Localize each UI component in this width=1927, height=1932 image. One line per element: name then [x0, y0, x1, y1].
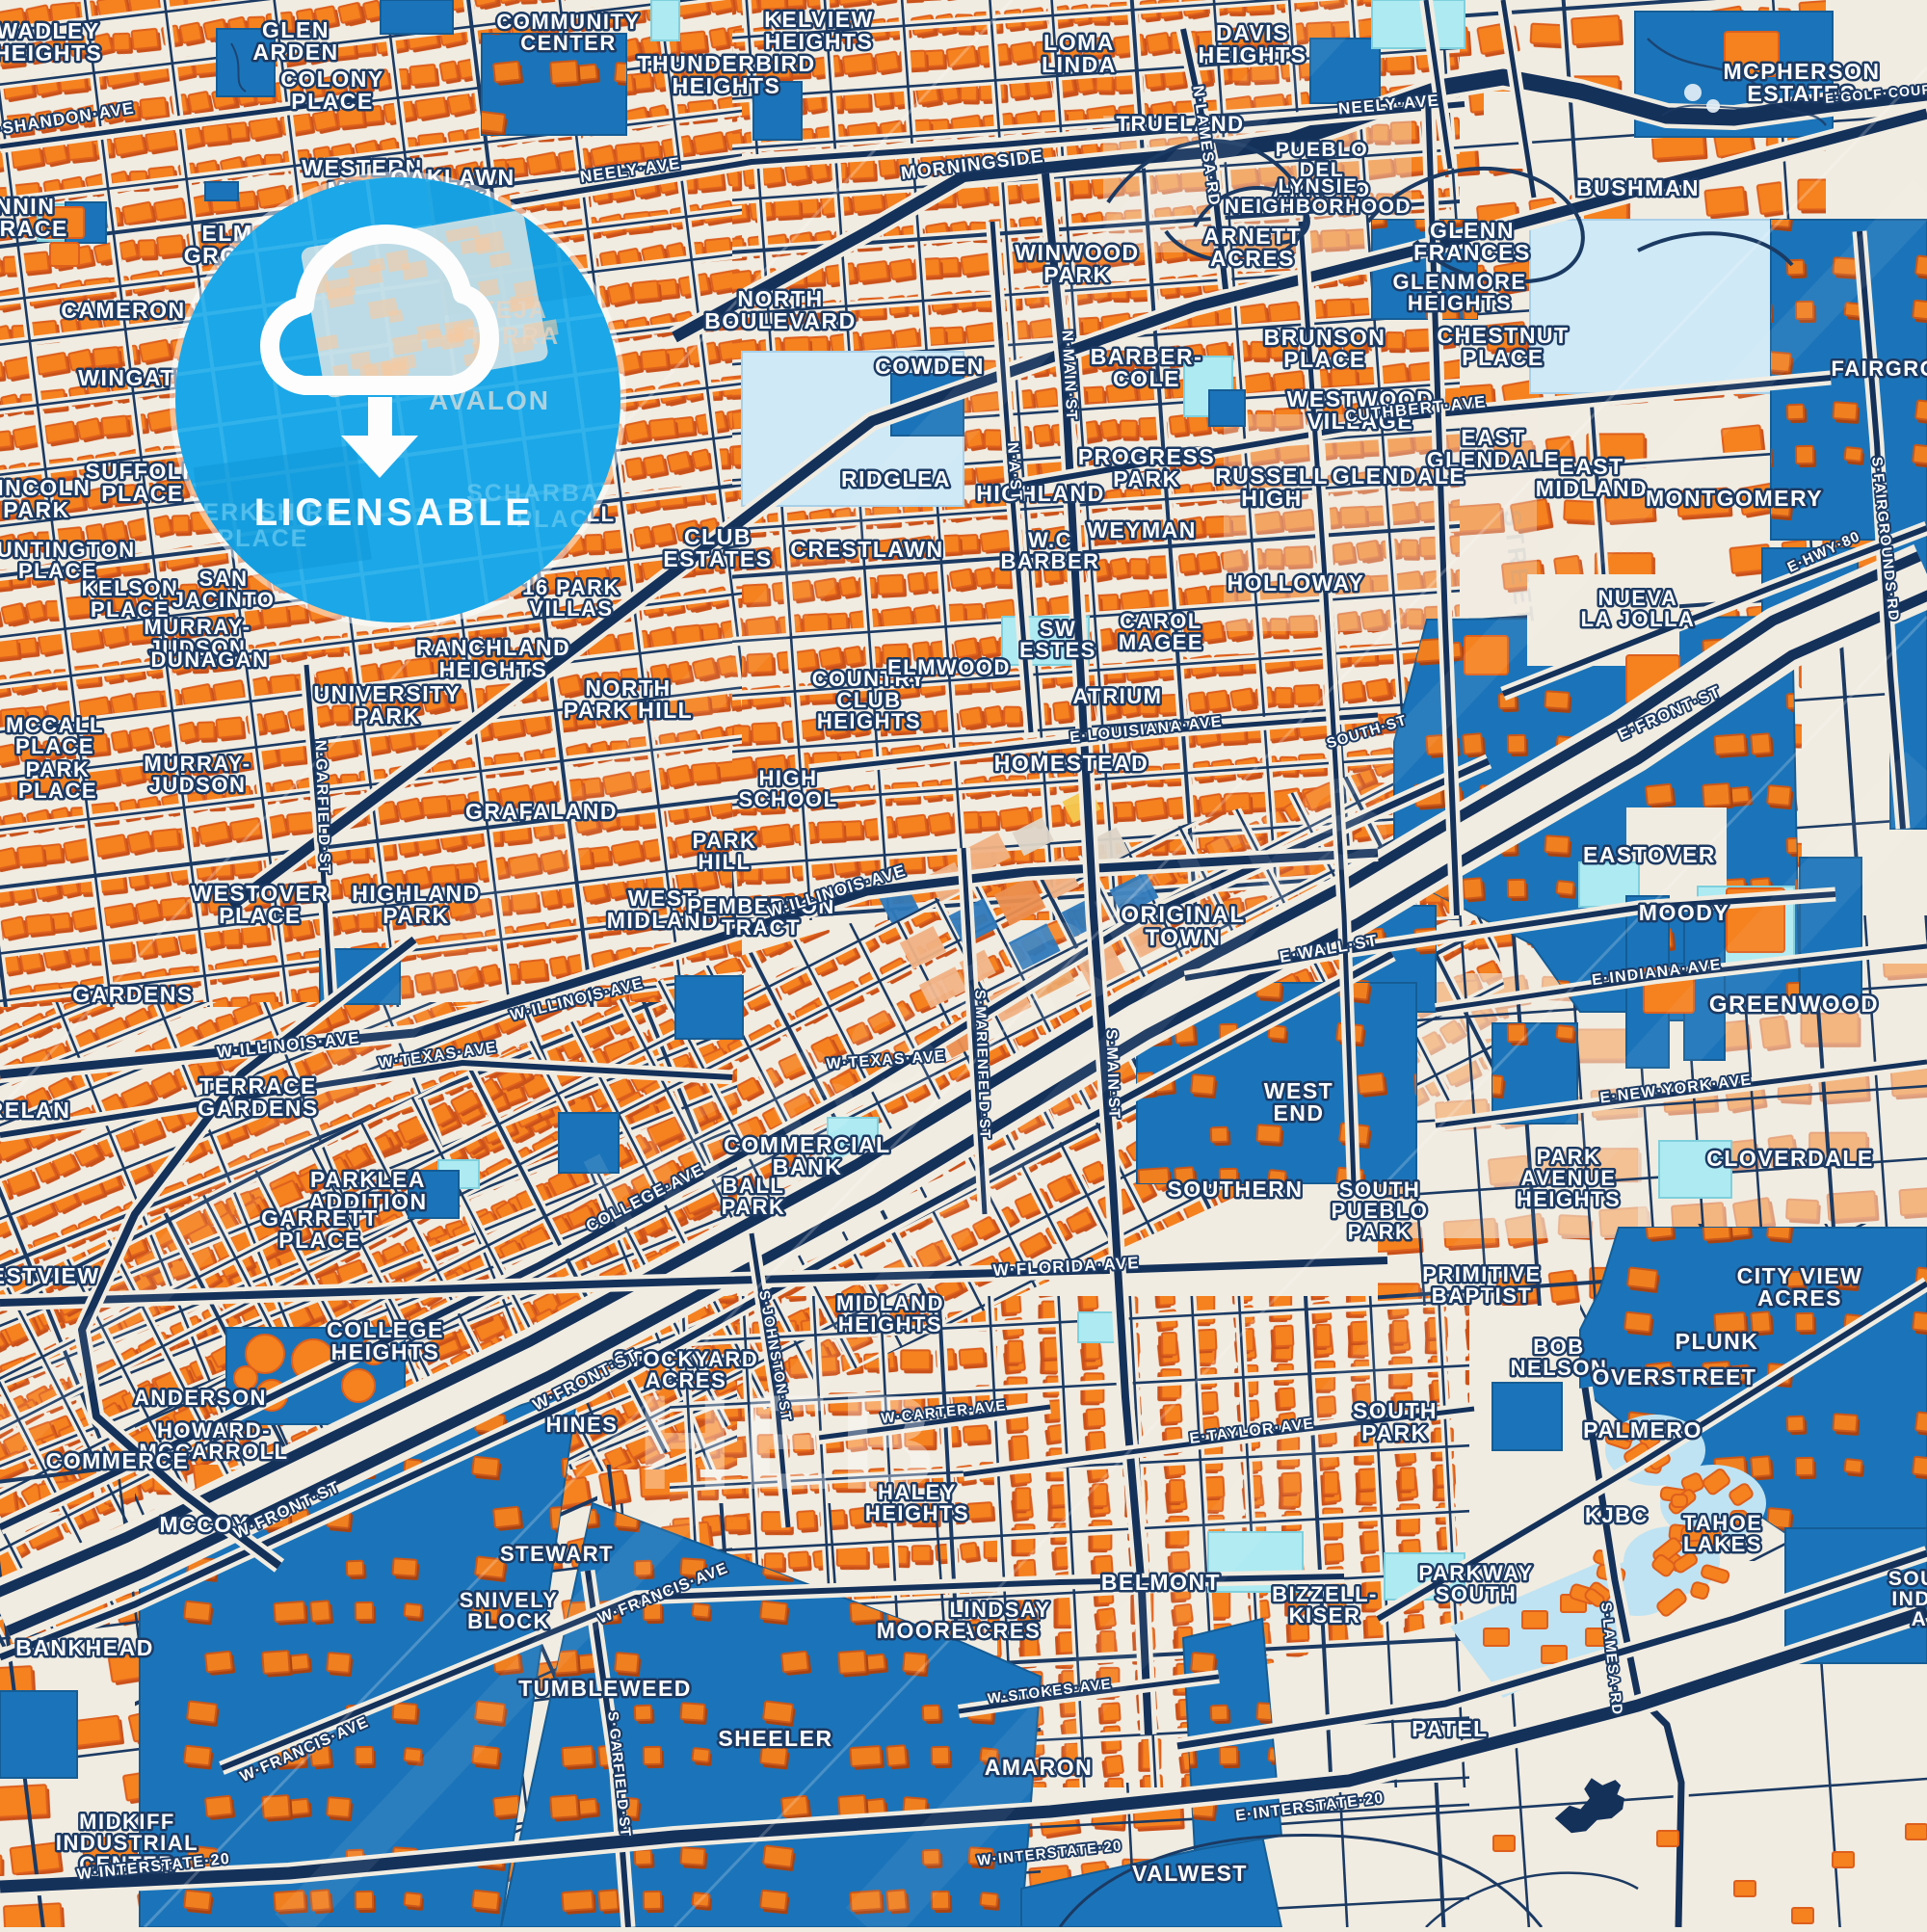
svg-text:TERRACEGARDENS: TERRACEGARDENS	[198, 1073, 319, 1121]
svg-text:BELMONT: BELMONT	[1101, 1570, 1221, 1595]
svg-text:COLLEGEHEIGHTS: COLLEGEHEIGHTS	[327, 1317, 444, 1364]
svg-text:LICENSABLE: LICENSABLE	[254, 491, 535, 534]
svg-text:16 PARKVILLAS: 16 PARKVILLAS	[522, 575, 620, 621]
svg-text:PARKPLACE: PARKPLACE	[18, 757, 97, 803]
svg-text:MIDLANDHEIGHTS: MIDLANDHEIGHTS	[836, 1291, 944, 1337]
svg-text:GARRETTPLACE: GARRETTPLACE	[261, 1205, 379, 1253]
svg-text:PARKWAYSOUTH: PARKWAYSOUTH	[1418, 1561, 1533, 1606]
svg-text:PRIMITIVEBAPTIST: PRIMITIVEBAPTIST	[1422, 1262, 1542, 1308]
svg-text:GREENWOOD: GREENWOOD	[1709, 992, 1879, 1018]
svg-text:ELMWOOD: ELMWOOD	[887, 655, 1011, 679]
svg-text:HINES: HINES	[546, 1413, 619, 1437]
svg-text:OVERSTREET: OVERSTREET	[1593, 1364, 1757, 1389]
svg-text:CLOVERDALE: CLOVERDALE	[1706, 1146, 1873, 1171]
svg-text:SHEELER: SHEELER	[718, 1726, 832, 1751]
svg-text:COLONYPLACE: COLONYPLACE	[280, 66, 383, 114]
svg-text:RIDGLEA: RIDGLEA	[841, 466, 951, 491]
svg-text:DUNAGAN: DUNAGAN	[151, 648, 270, 672]
svg-text:HALEYHEIGHTS: HALEYHEIGHTS	[865, 1480, 969, 1525]
svg-text:TUMBLEWEED: TUMBLEWEED	[518, 1676, 692, 1701]
svg-text:CRESTLAWN: CRESTLAWN	[790, 537, 943, 562]
svg-text:MOODY: MOODY	[1639, 900, 1729, 925]
svg-text:SOUTHERN: SOUTHERN	[1167, 1177, 1303, 1202]
svg-text:COWDEN: COWDEN	[875, 354, 985, 379]
svg-text:VALWEST: VALWEST	[1132, 1861, 1248, 1886]
svg-text:BALLPARK: BALLPARK	[722, 1174, 786, 1219]
svg-text:CAROLMAGEE: CAROLMAGEE	[1119, 609, 1203, 654]
svg-text:WESTEND: WESTEND	[1264, 1078, 1333, 1125]
svg-text:GLENDALE: GLENDALE	[1333, 463, 1466, 489]
svg-text:SOUTHPARK: SOUTHPARK	[1353, 1398, 1438, 1445]
svg-text:MCCALLPLACE: MCCALLPLACE	[6, 713, 104, 758]
svg-text:WADLEYHEIGHTS: WADLEYHEIGHTS	[0, 18, 102, 66]
svg-text:GARDENS: GARDENS	[72, 982, 194, 1007]
svg-text:ANDERSON: ANDERSON	[134, 1386, 267, 1410]
svg-text:KJBC: KJBC	[1585, 1503, 1649, 1527]
svg-text:HOLLOWAY: HOLLOWAY	[1227, 570, 1365, 595]
svg-text:STEWART: STEWART	[500, 1542, 614, 1566]
svg-text:KELVIEWHEIGHTS: KELVIEWHEIGHTS	[764, 7, 874, 54]
svg-text:HOMESTEAD: HOMESTEAD	[994, 751, 1148, 776]
svg-text:WESTVIEW: WESTVIEW	[0, 1263, 100, 1288]
svg-text:PALMERO: PALMERO	[1583, 1417, 1703, 1442]
svg-text:GRAFALAND: GRAFALAND	[465, 799, 618, 824]
svg-text:MOORE: MOORE	[877, 1618, 967, 1643]
svg-text:LOMALINDA: LOMALINDA	[1042, 30, 1117, 77]
svg-text:S·MAIN·ST: S·MAIN·ST	[1102, 1029, 1122, 1120]
svg-text:GLENMOREHEIGHTS: GLENMOREHEIGHTS	[1392, 270, 1526, 315]
svg-text:CAMERON: CAMERON	[61, 298, 185, 323]
svg-text:SNIVELYBLOCK: SNIVELYBLOCK	[460, 1588, 559, 1633]
svg-text:AMARON: AMARON	[985, 1755, 1094, 1780]
svg-text:RELAN: RELAN	[0, 1098, 70, 1123]
svg-text:BANKHEAD: BANKHEAD	[15, 1635, 154, 1660]
svg-text:HIGHLAND: HIGHLAND	[976, 481, 1104, 506]
svg-text:FAIRGROUNDS: FAIRGROUNDS	[1831, 357, 1927, 381]
svg-text:PATEL: PATEL	[1412, 1716, 1488, 1741]
svg-text:COMMERCE: COMMERCE	[46, 1448, 190, 1473]
svg-text:WEYMAN: WEYMAN	[1087, 517, 1197, 543]
svg-text:GLENARDEN: GLENARDEN	[252, 17, 338, 65]
svg-text:BUSHMAN: BUSHMAN	[1576, 175, 1700, 200]
svg-text:PARKHILL: PARKHILL	[693, 829, 757, 874]
svg-text:ATRIUM: ATRIUM	[1073, 684, 1163, 708]
svg-text:EASTOVER: EASTOVER	[1583, 842, 1716, 867]
svg-text:PLUNK: PLUNK	[1676, 1329, 1759, 1354]
svg-text:ARNETTACRES: ARNETTACRES	[1203, 224, 1302, 271]
svg-text:RANCHLANDHEIGHTS: RANCHLANDHEIGHTS	[416, 635, 570, 682]
svg-text:GLENNFRANCES: GLENNFRANCES	[1413, 218, 1531, 265]
svg-text:MURRAY-JUDSON: MURRAY-JUDSON	[144, 752, 251, 797]
svg-text:MONTGOMERY: MONTGOMERY	[1646, 486, 1823, 511]
svg-text:TRUELAND: TRUELAND	[1117, 112, 1245, 136]
svg-text:TAHOELAKES: TAHOELAKES	[1683, 1511, 1763, 1556]
